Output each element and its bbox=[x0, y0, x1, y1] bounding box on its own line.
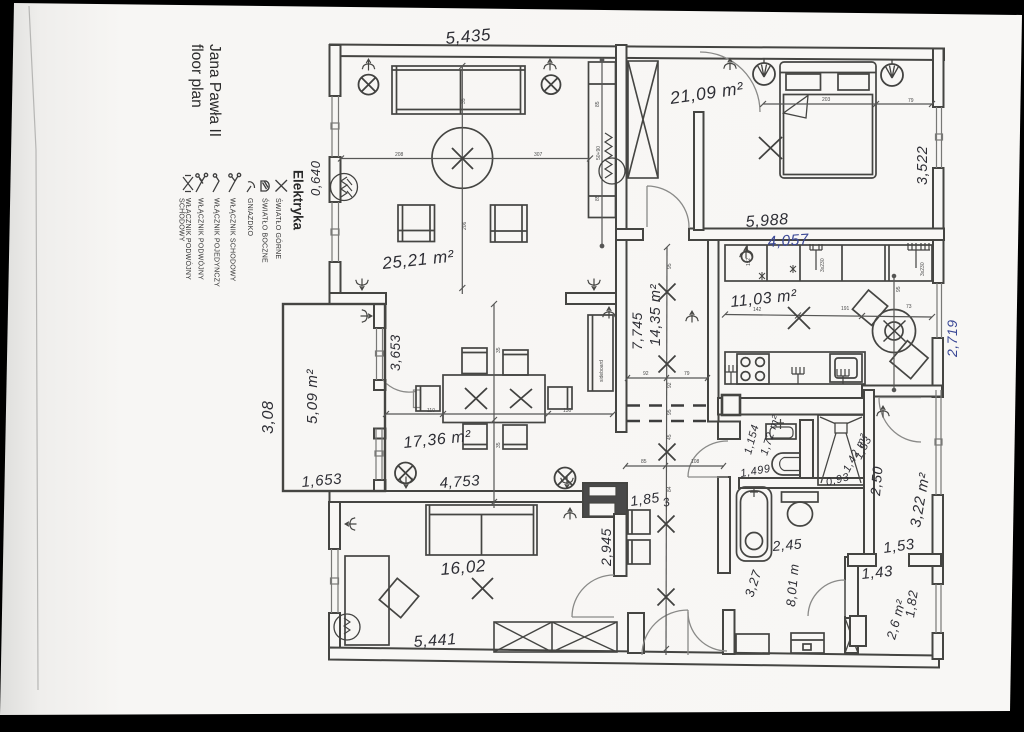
svg-text:16,02: 16,02 bbox=[440, 556, 487, 579]
svg-text:1,653: 1,653 bbox=[301, 471, 343, 491]
svg-text:85: 85 bbox=[595, 195, 601, 201]
svg-text:Jana Pawła II: Jana Pawła II bbox=[206, 44, 223, 137]
svg-text:SCHODOWY: SCHODOWY bbox=[178, 198, 185, 242]
svg-text:WŁĄCZNIK SCHODOWY: WŁĄCZNIK SCHODOWY bbox=[229, 198, 236, 282]
svg-text:35: 35 bbox=[496, 442, 502, 448]
svg-text:92: 92 bbox=[667, 382, 673, 388]
svg-text:95: 95 bbox=[667, 409, 673, 415]
svg-text:110: 110 bbox=[427, 408, 435, 414]
svg-text:5,09 m²: 5,09 m² bbox=[304, 369, 321, 424]
svg-text:307: 307 bbox=[534, 152, 543, 158]
svg-text:73: 73 bbox=[906, 304, 912, 310]
svg-text:ŚWIATŁO BOCZNE: ŚWIATŁO BOCZNE bbox=[261, 198, 270, 263]
svg-text:14,35 m²: 14,35 m² bbox=[648, 283, 664, 346]
svg-text:WŁĄCZNIK PODWÓJNY: WŁĄCZNIK PODWÓJNY bbox=[197, 198, 206, 280]
svg-text:50+90: 50+90 bbox=[596, 146, 602, 160]
svg-text:Elektryka: Elektryka bbox=[291, 170, 306, 231]
svg-text:3,522: 3,522 bbox=[915, 146, 931, 185]
svg-text:5,988: 5,988 bbox=[745, 211, 789, 231]
svg-text:3,08: 3,08 bbox=[260, 400, 277, 434]
svg-text:4,753: 4,753 bbox=[439, 472, 481, 492]
svg-text:4,057: 4,057 bbox=[767, 231, 810, 251]
svg-text:7,745: 7,745 bbox=[629, 312, 645, 350]
svg-text:95: 95 bbox=[896, 286, 902, 292]
svg-text:2,719: 2,719 bbox=[944, 319, 960, 358]
svg-text:79: 79 bbox=[684, 371, 690, 377]
svg-text:ŚWIATŁO GÓRNE: ŚWIATŁO GÓRNE bbox=[274, 198, 283, 259]
svg-text:5,435: 5,435 bbox=[445, 25, 492, 48]
svg-text:3,653: 3,653 bbox=[388, 334, 403, 371]
svg-text:130: 130 bbox=[563, 408, 572, 414]
svg-text:5,441: 5,441 bbox=[413, 631, 457, 651]
svg-text:208: 208 bbox=[395, 152, 404, 158]
svg-text:191: 191 bbox=[841, 306, 850, 312]
svg-text:2,45: 2,45 bbox=[771, 535, 803, 554]
svg-text:3x230: 3x230 bbox=[920, 262, 926, 276]
svg-text:sideboard: sideboard bbox=[599, 360, 605, 382]
svg-text:35: 35 bbox=[496, 347, 502, 353]
svg-text:206: 206 bbox=[462, 221, 468, 230]
svg-text:3x230: 3x230 bbox=[820, 258, 826, 272]
svg-text:45: 45 bbox=[667, 434, 673, 440]
svg-text:85: 85 bbox=[641, 459, 647, 465]
svg-text:35: 35 bbox=[461, 98, 467, 104]
svg-text:79: 79 bbox=[908, 98, 914, 104]
svg-text:92: 92 bbox=[643, 371, 649, 377]
svg-text:0,640: 0,640 bbox=[308, 160, 323, 196]
svg-text:1x2: 1x2 bbox=[746, 258, 752, 266]
svg-text:142: 142 bbox=[753, 307, 762, 313]
svg-text:1,43: 1,43 bbox=[861, 563, 894, 583]
svg-text:2,50: 2,50 bbox=[867, 465, 886, 497]
svg-text:floor plan: floor plan bbox=[188, 44, 205, 108]
svg-text:85: 85 bbox=[595, 101, 601, 107]
svg-text:203: 203 bbox=[822, 97, 831, 103]
svg-text:2,945: 2,945 bbox=[598, 528, 614, 567]
svg-text:GNIAZDKO: GNIAZDKO bbox=[246, 198, 253, 237]
svg-text:95: 95 bbox=[667, 263, 673, 269]
svg-text:84: 84 bbox=[667, 486, 673, 492]
svg-text:108: 108 bbox=[691, 459, 700, 465]
svg-text:WŁĄCZNIK POJEDYNCZY: WŁĄCZNIK POJEDYNCZY bbox=[213, 198, 220, 287]
